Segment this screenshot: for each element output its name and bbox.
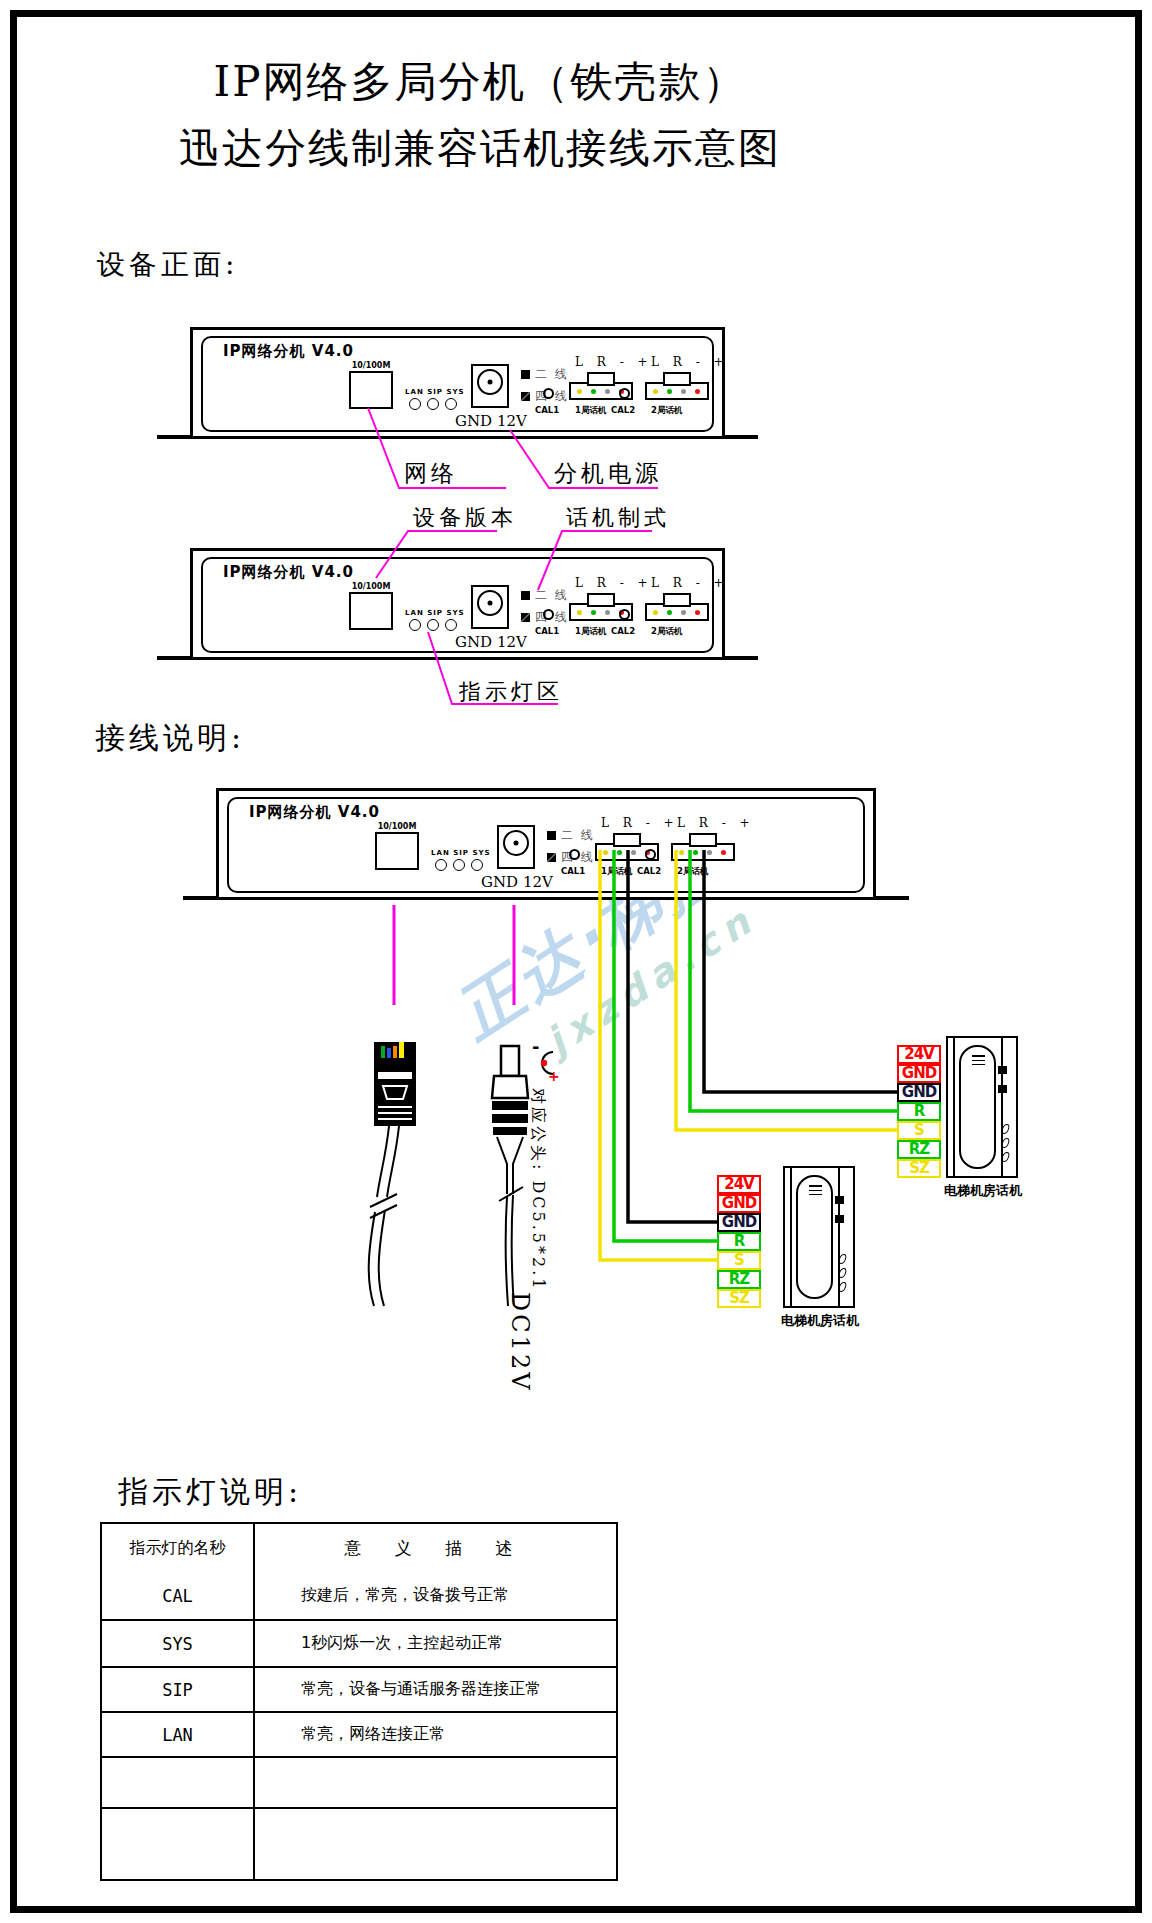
led-table-row: CAL按建后，常亮，设备拨号正常 bbox=[102, 1572, 616, 1619]
terminal-row-gnd: GND bbox=[717, 1213, 761, 1232]
phone-label-right: 电梯机房话机 bbox=[928, 1182, 1038, 1200]
callout-lines bbox=[368, 408, 658, 704]
machine-room-phone-left bbox=[783, 1166, 855, 1308]
machine-room-phone-right bbox=[946, 1036, 1018, 1178]
led-name-cell: SIP bbox=[102, 1668, 255, 1711]
dc12v-label: DC12V bbox=[506, 1292, 534, 1392]
callout-network: 网络 bbox=[404, 458, 458, 489]
led-name-cell: LAN bbox=[102, 1713, 255, 1756]
wires-connector1 bbox=[600, 850, 717, 1260]
section-device-front: 设备正面: bbox=[97, 246, 238, 284]
phone-label-left: 电梯机房话机 bbox=[765, 1312, 875, 1330]
led-desc-cell: 1秒闪烁一次，主控起动正常 bbox=[255, 1621, 616, 1666]
polarity-minus: - bbox=[532, 1036, 539, 1057]
terminal-row-gnd: GND bbox=[897, 1083, 941, 1102]
callout-ext-power: 分机电源 bbox=[554, 458, 662, 489]
terminal-row-24v: 24V bbox=[717, 1175, 761, 1194]
led-desc-cell bbox=[255, 1809, 616, 1879]
terminal-row-gnd: GND bbox=[897, 1064, 941, 1083]
led-description-table: 指示灯的名秒 意 义 描 述 CAL按建后，常亮，设备拨号正常SYS1秒闪烁一次… bbox=[100, 1522, 618, 1881]
terminal-row-sz: SZ bbox=[717, 1289, 761, 1308]
led-table-row bbox=[102, 1756, 616, 1807]
wire-r-green-2 bbox=[690, 850, 897, 1111]
dc-cable bbox=[506, 1195, 514, 1306]
speaker-grille-icon bbox=[809, 1185, 822, 1195]
speaker-grille-icon bbox=[972, 1055, 985, 1065]
port-drop-lines bbox=[394, 905, 514, 1005]
rj45-plug bbox=[369, 1042, 416, 1306]
wire-l-yellow-2 bbox=[676, 850, 897, 1130]
led-desc-cell bbox=[255, 1758, 616, 1807]
network-cable bbox=[377, 1126, 399, 1197]
led-table-row: SIP常亮，设备与通话服务器连接正常 bbox=[102, 1666, 616, 1711]
polarity-center-dot bbox=[541, 1060, 547, 1066]
terminal-row-s: S bbox=[897, 1121, 941, 1140]
phone-button bbox=[998, 1085, 1007, 1093]
terminal-row-rz: RZ bbox=[897, 1140, 941, 1159]
wire-gnd-black-2 bbox=[704, 850, 897, 1092]
wires-connector2 bbox=[676, 850, 897, 1130]
callout-indicator-area: 指示灯区 bbox=[459, 677, 563, 707]
callout-phone-standard: 话机制式 bbox=[566, 503, 670, 533]
led-table-row bbox=[102, 1807, 616, 1879]
phone-button bbox=[835, 1215, 844, 1223]
led-name-cell: CAL bbox=[102, 1572, 255, 1619]
wire-l-yellow-1 bbox=[600, 850, 717, 1260]
phone-button bbox=[998, 1066, 1007, 1074]
led-table-row: SYS1秒闪烁一次，主控起动正常 bbox=[102, 1619, 616, 1666]
terminal-row-s: S bbox=[717, 1251, 761, 1270]
terminal-row-r: R bbox=[897, 1102, 941, 1121]
terminal-row-sz: SZ bbox=[897, 1159, 941, 1178]
terminal-row-r: R bbox=[717, 1232, 761, 1251]
section-led-desc: 指示灯说明: bbox=[118, 1472, 302, 1513]
plug-spec-note: 对应公头: DC5.5*2.1 bbox=[527, 1088, 548, 1291]
led-desc-cell: 按建后，常亮，设备拨号正常 bbox=[255, 1572, 616, 1619]
title-line1: IP网络多局分机（铁壳款） bbox=[40, 60, 920, 105]
polarity-plus: + bbox=[548, 1068, 560, 1084]
led-name-cell bbox=[102, 1758, 255, 1807]
terminal-block-left: 24VGNDGNDRSRZSZ bbox=[717, 1175, 761, 1308]
led-desc-cell: 常亮，网络连接正常 bbox=[255, 1713, 616, 1756]
terminal-row-gnd: GND bbox=[717, 1194, 761, 1213]
section-wiring: 接线说明: bbox=[95, 718, 245, 759]
led-table-row: LAN常亮，网络连接正常 bbox=[102, 1711, 616, 1756]
terminal-block-right: 24VGNDGNDRSRZSZ bbox=[897, 1045, 941, 1178]
led-name-cell: SYS bbox=[102, 1621, 255, 1666]
led-name-cell bbox=[102, 1809, 255, 1879]
callout-line-phone-standard bbox=[538, 531, 652, 590]
terminal-row-24v: 24V bbox=[897, 1045, 941, 1064]
terminal-row-rz: RZ bbox=[717, 1270, 761, 1289]
wiring-diagram-page: IP网络多局分机（铁壳款） 迅达分线制兼容话机接线示意图 设备正面: 接线说明:… bbox=[0, 0, 1152, 1923]
title-line2: 迅达分线制兼容话机接线示意图 bbox=[40, 127, 920, 170]
callout-line-device-version bbox=[376, 531, 497, 578]
led-table-header: 指示灯的名秒 意 义 描 述 bbox=[102, 1524, 616, 1572]
callout-device-version: 设备版本 bbox=[413, 503, 517, 533]
page-title: IP网络多局分机（铁壳款） 迅达分线制兼容话机接线示意图 bbox=[40, 60, 920, 170]
phone-button bbox=[835, 1196, 844, 1204]
led-desc-cell: 常亮，设备与通话服务器连接正常 bbox=[255, 1668, 616, 1711]
led-table-col2-header: 意 义 描 述 bbox=[255, 1524, 616, 1572]
led-table-col1-header: 指示灯的名秒 bbox=[102, 1524, 255, 1572]
